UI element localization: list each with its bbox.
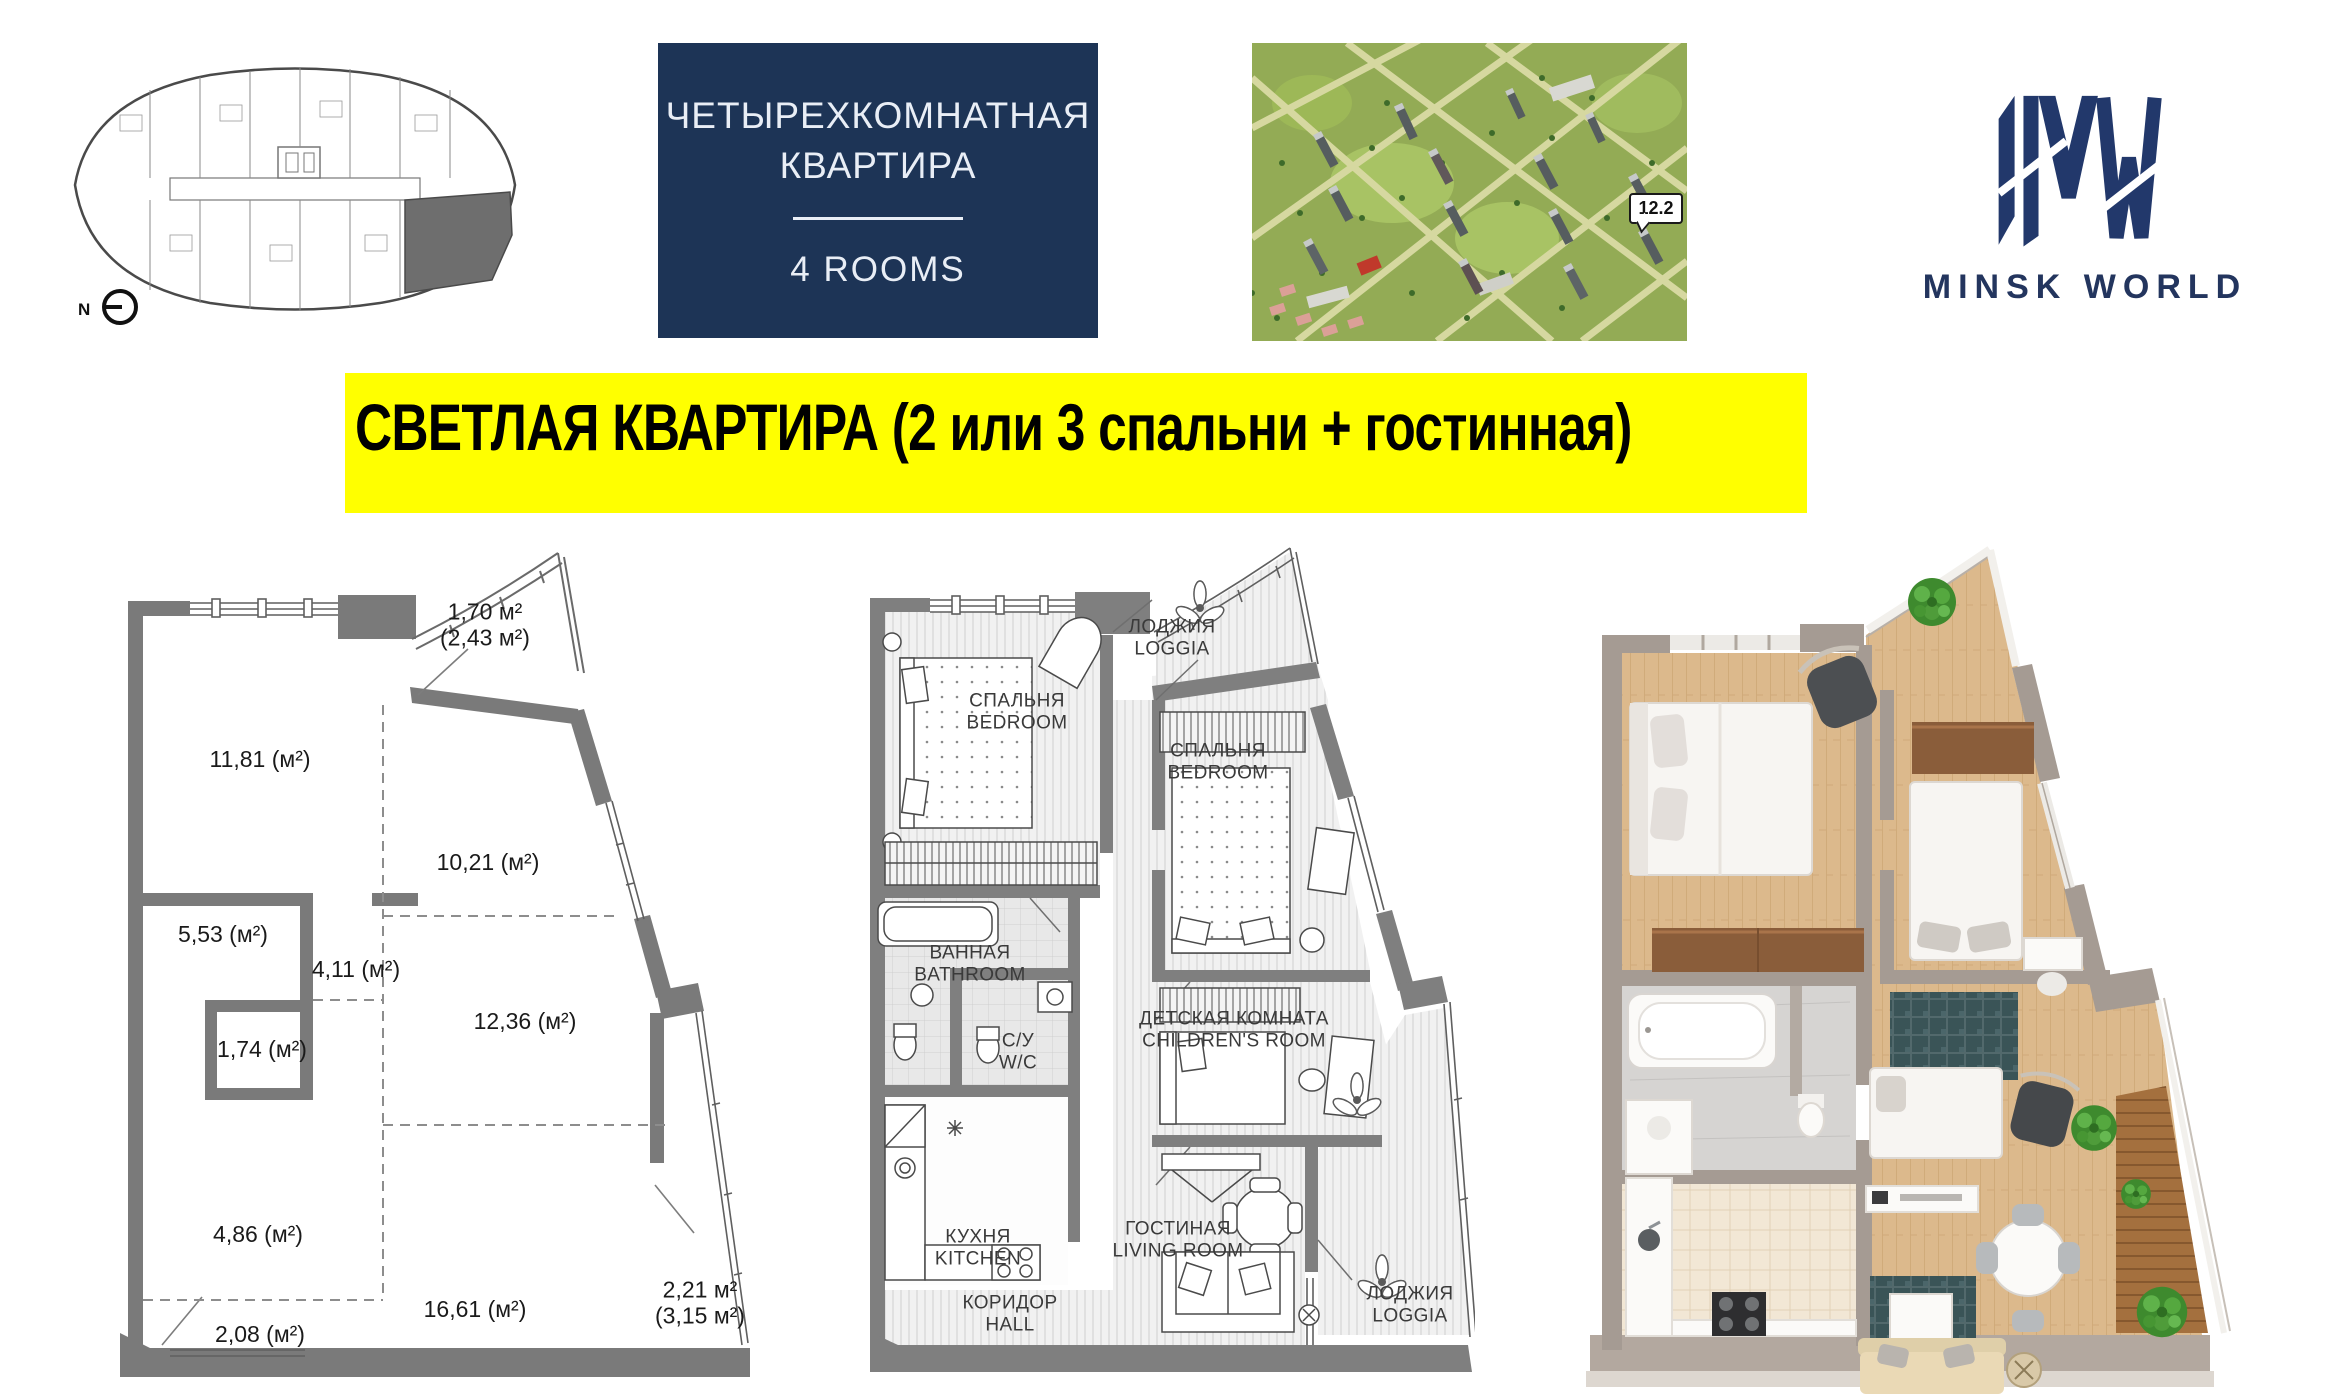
furnished-floor-plan: ЛОДЖИЯ LOGGIA СПАЛЬНЯ BEDROOM СПАЛЬНЯ BE… bbox=[860, 540, 1475, 1393]
type-title-ru-line1: ЧЕТЫРЕХКОМНАТНАЯ bbox=[666, 91, 1091, 141]
room-label-loggia-bottom: ЛОДЖИЯ LOGGIA bbox=[1366, 1283, 1453, 1326]
highlighted-unit bbox=[405, 192, 512, 293]
area-label-12-36: 12,36 (м²) bbox=[474, 1009, 577, 1035]
area-label-5-53: 5,53 (м²) bbox=[178, 922, 268, 948]
area-label-1-74: 1,74 (м²) bbox=[217, 1037, 307, 1063]
room-label-bedroom-2: СПАЛЬНЯ BEDROOM bbox=[1168, 740, 1269, 783]
dimension-floor-plan: 1,70 м² (2,43 м²) 11,81 (м²) 10,21 (м²) … bbox=[110, 545, 755, 1393]
north-indicator: N bbox=[78, 291, 136, 323]
minsk-world-logo: MINSK WORLD bbox=[1900, 70, 2270, 325]
area-label-2-08: 2,08 (м²) bbox=[215, 1322, 305, 1348]
area-label-loggia-bottom: 2,21 м² (3,15 м²) bbox=[655, 1277, 745, 1329]
flyer-page: N ЧЕТЫРЕХКОМНАТНАЯ КВАРТИРА 4 ROOMS bbox=[0, 0, 2332, 1398]
render-3d-plan bbox=[1560, 540, 2290, 1398]
building-floor-plate: N bbox=[60, 35, 530, 345]
type-title-ru-line2: КВАРТИРА bbox=[780, 141, 977, 191]
apartment-type-card: ЧЕТЫРЕХКОМНАТНАЯ КВАРТИРА 4 ROOMS bbox=[658, 43, 1098, 338]
type-title-en: 4 ROOMS bbox=[790, 250, 965, 290]
headline-text: СВЕТЛАЯ КВАРТИРА (2 или 3 спальни + гост… bbox=[355, 389, 1632, 465]
headline-banner: СВЕТЛАЯ КВАРТИРА (2 или 3 спальни + гост… bbox=[345, 373, 1807, 513]
room-label-children: ДЕТСКАЯ КОМНАТА CHILDREN'S ROOM bbox=[1139, 1008, 1329, 1051]
building-number: 12.2 bbox=[1638, 198, 1673, 219]
area-label-loggia-top: 1,70 м² (2,43 м²) bbox=[440, 599, 530, 651]
room-label-bathroom: ВАННАЯ BATHROOM bbox=[914, 942, 1026, 985]
north-label: N bbox=[78, 300, 90, 319]
mw-monogram-icon bbox=[1988, 70, 2183, 260]
room-label-wc: С/У W/C bbox=[999, 1030, 1037, 1073]
aerial-site-view bbox=[1252, 43, 1687, 341]
room-label-hall: КОРИДОР HALL bbox=[962, 1292, 1057, 1335]
logo-wordmark: MINSK WORLD bbox=[1900, 268, 2270, 307]
room-label-bedroom-1: СПАЛЬНЯ BEDROOM bbox=[967, 690, 1068, 733]
area-label-10-21: 10,21 (м²) bbox=[437, 850, 540, 876]
area-label-4-86: 4,86 (м²) bbox=[213, 1222, 303, 1248]
area-label-16-61: 16,61 (м²) bbox=[424, 1297, 527, 1323]
room-label-loggia-top: ЛОДЖИЯ LOGGIA bbox=[1128, 616, 1215, 659]
area-label-4-11: 4,11 (м²) bbox=[312, 957, 400, 983]
dimension-plan-drawing bbox=[110, 545, 755, 1393]
card-divider bbox=[793, 217, 963, 220]
area-label-11-81: 11,81 (м²) bbox=[209, 747, 310, 773]
room-label-kitchen: КУХНЯ KITCHEN bbox=[935, 1226, 1021, 1269]
building-number-tag: 12.2 bbox=[1629, 193, 1683, 224]
room-label-living: ГОСТИНАЯ LIVING ROOM bbox=[1112, 1218, 1243, 1261]
